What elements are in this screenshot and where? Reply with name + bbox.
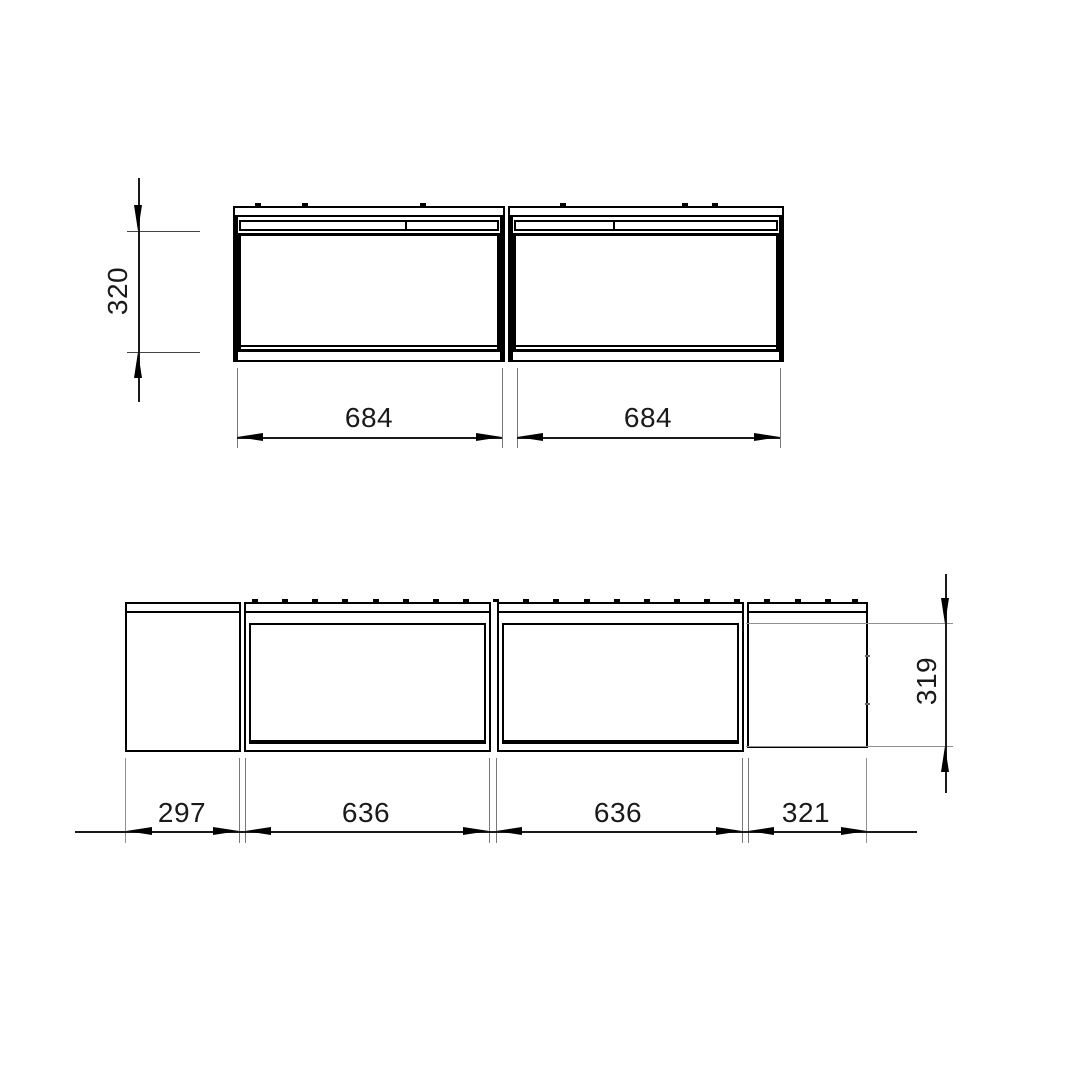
flap-door-outline xyxy=(238,233,500,352)
top-view-module-b xyxy=(508,206,784,362)
top-panel-edge xyxy=(127,611,239,613)
top-view-module-a xyxy=(233,206,505,362)
dowel-mark xyxy=(852,599,858,602)
dowel-mark xyxy=(433,599,439,602)
flap-door-outline xyxy=(502,623,739,744)
extension-line xyxy=(502,368,503,448)
dowel-mark xyxy=(312,599,318,602)
dimension-line xyxy=(237,437,502,439)
shelf-pin-mark xyxy=(865,655,870,657)
extension-line xyxy=(746,623,953,624)
rail-divider xyxy=(405,222,407,229)
front-view-module-a xyxy=(244,602,491,752)
arrow-left-icon xyxy=(237,433,263,441)
arrow-left-icon xyxy=(496,827,522,835)
arrow-right-icon xyxy=(476,433,502,441)
dowel-mark xyxy=(674,599,680,602)
arrow-right-icon xyxy=(716,827,742,835)
arrow-right-icon xyxy=(213,827,239,835)
flap-door-outline xyxy=(249,623,486,744)
top-panel-edge xyxy=(510,215,782,217)
arrow-right-icon xyxy=(463,827,489,835)
fitting-mark xyxy=(682,203,688,206)
top-panel-edge xyxy=(499,611,742,613)
dim-label-right-width: 321 xyxy=(782,797,830,829)
dim-label-module-a-width: 684 xyxy=(345,402,393,434)
rail-divider xyxy=(613,222,615,229)
top-panel-edge xyxy=(749,611,866,613)
dowel-mark xyxy=(523,599,529,602)
dowel-mark xyxy=(584,599,590,602)
fitting-mark xyxy=(302,203,308,206)
arrow-left-icon xyxy=(748,827,774,835)
dim-label-module-b-width: 684 xyxy=(624,402,672,434)
fitting-mark xyxy=(420,203,426,206)
side-wall xyxy=(500,217,503,360)
fitting-mark xyxy=(255,203,261,206)
dowel-mark xyxy=(493,599,499,602)
door-bottom-edge xyxy=(241,345,497,347)
shelf-pin-mark xyxy=(865,703,870,705)
arrow-left-icon xyxy=(245,827,271,835)
door-bottom-edge xyxy=(516,345,776,347)
dim-label-module-b-width: 636 xyxy=(594,797,642,829)
side-wall xyxy=(779,217,782,360)
flap-door-outline xyxy=(513,233,779,352)
arrow-down-icon xyxy=(134,205,142,231)
top-rail xyxy=(514,220,778,231)
dowel-mark xyxy=(252,599,258,602)
arrow-down-icon xyxy=(941,598,949,624)
front-view-left-section xyxy=(125,602,241,752)
dimension-line xyxy=(517,437,780,439)
arrow-left-icon xyxy=(126,827,152,835)
dowel-mark xyxy=(644,599,650,602)
arrow-up-icon xyxy=(134,352,142,378)
dim-label-module-a-width: 636 xyxy=(342,797,390,829)
arrow-right-icon xyxy=(841,827,867,835)
fitting-mark xyxy=(560,203,566,206)
dowel-mark xyxy=(764,599,770,602)
dim-label-height: 320 xyxy=(102,267,134,315)
fitting-mark xyxy=(712,203,718,206)
dowel-mark xyxy=(463,599,469,602)
dim-label-left-width: 297 xyxy=(158,797,206,829)
extension-line xyxy=(780,368,781,448)
top-rail xyxy=(239,220,499,231)
dowel-mark xyxy=(553,599,559,602)
technical-drawing-canvas: 320 684 684 xyxy=(0,0,1080,1080)
dowel-mark xyxy=(614,599,620,602)
dowel-mark xyxy=(342,599,348,602)
front-view-module-b xyxy=(497,602,744,752)
top-panel-edge xyxy=(246,611,489,613)
dowel-mark xyxy=(734,599,740,602)
dowel-mark xyxy=(704,599,710,602)
arrow-left-icon xyxy=(517,433,543,441)
extension-line xyxy=(746,746,953,747)
dim-label-height: 319 xyxy=(911,657,943,705)
arrow-up-icon xyxy=(941,746,949,772)
dowel-mark xyxy=(282,599,288,602)
dowel-mark xyxy=(403,599,409,602)
dowel-mark xyxy=(373,599,379,602)
top-panel-edge xyxy=(235,215,503,217)
arrow-right-icon xyxy=(754,433,780,441)
dowel-mark xyxy=(795,599,801,602)
dowel-mark xyxy=(825,599,831,602)
